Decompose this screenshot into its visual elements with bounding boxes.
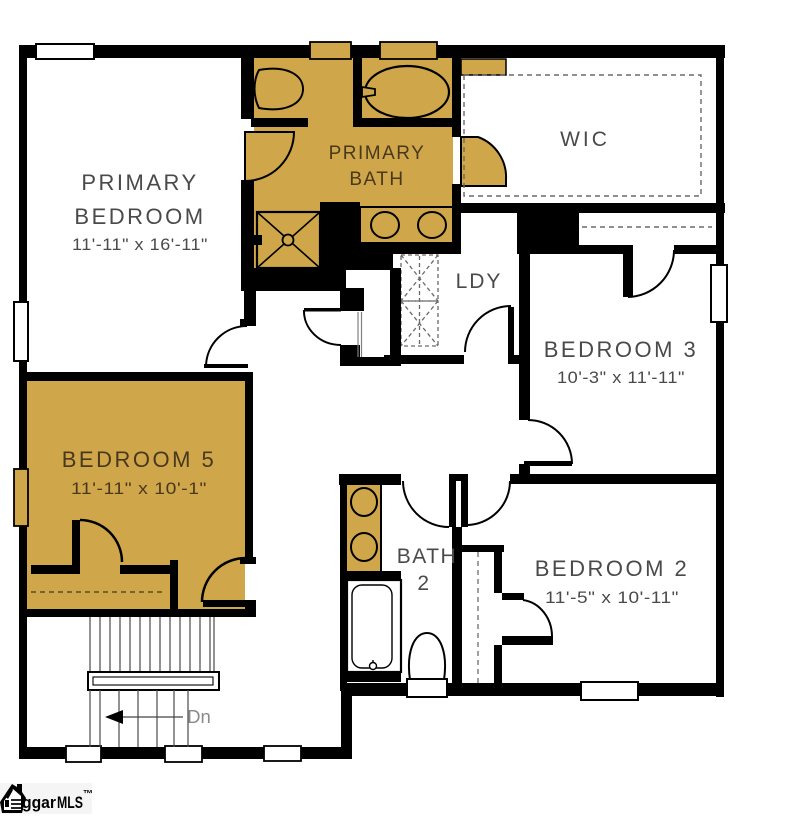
svg-text:11'-11" x 10'-1": 11'-11" x 10'-1": [71, 480, 207, 498]
svg-text:BEDROOM 5: BEDROOM 5: [62, 447, 217, 472]
svg-text:BATH: BATH: [397, 545, 457, 568]
svg-text:BATH: BATH: [349, 169, 404, 190]
svg-text:PRIMARY: PRIMARY: [81, 170, 198, 195]
svg-text:BEDROOM: BEDROOM: [74, 204, 205, 229]
svg-text:BEDROOM 3: BEDROOM 3: [544, 337, 699, 362]
svg-text:™: ™: [83, 789, 93, 800]
svg-text:10'-3" x 11'-11": 10'-3" x 11'-11": [557, 369, 685, 387]
svg-text:WIC: WIC: [560, 128, 610, 151]
svg-text:LDY: LDY: [456, 270, 503, 293]
svg-text:11'-5" x 10'-11": 11'-5" x 10'-11": [545, 589, 679, 607]
svg-text:2: 2: [417, 572, 430, 595]
svg-text:Dn: Dn: [187, 706, 211, 727]
svg-text:BEDROOM 2: BEDROOM 2: [535, 556, 690, 581]
svg-text:11'-11" x 16'-11": 11'-11" x 16'-11": [72, 236, 208, 254]
svg-text:ggar: ggar: [22, 793, 56, 812]
svg-text:PRIMARY: PRIMARY: [329, 143, 426, 164]
svg-text:MLS: MLS: [57, 794, 83, 812]
